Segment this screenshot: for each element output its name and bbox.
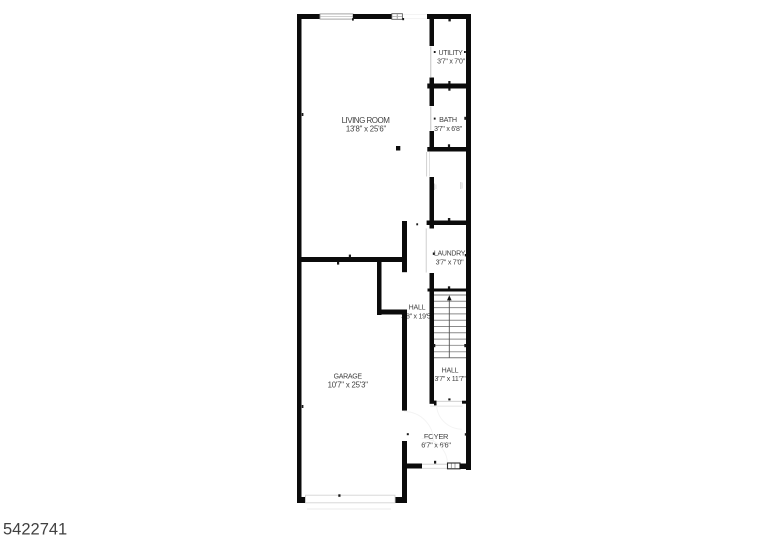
svg-text:5422741: 5422741 (3, 520, 67, 538)
svg-text:HALL: HALL (409, 305, 426, 312)
svg-text:3'7" x 6'8": 3'7" x 6'8" (434, 126, 463, 133)
svg-text:BATH: BATH (439, 115, 457, 124)
svg-text:HALL: HALL (442, 368, 459, 375)
svg-text:3'7" x 7'0": 3'7" x 7'0" (437, 59, 466, 66)
svg-text:13'8" x 25'6": 13'8" x 25'6" (346, 124, 387, 133)
svg-text:6'7" x 6'6": 6'7" x 6'6" (421, 441, 451, 450)
svg-text:UTILITY: UTILITY (439, 50, 464, 57)
svg-text:3'7" x 11'7": 3'7" x 11'7" (435, 376, 467, 383)
svg-text:3'7" x 7'0": 3'7" x 7'0" (436, 260, 465, 267)
svg-text:10'7" x 25'3": 10'7" x 25'3" (328, 381, 369, 390)
svg-text:LAUNDRY: LAUNDRY (434, 251, 466, 258)
